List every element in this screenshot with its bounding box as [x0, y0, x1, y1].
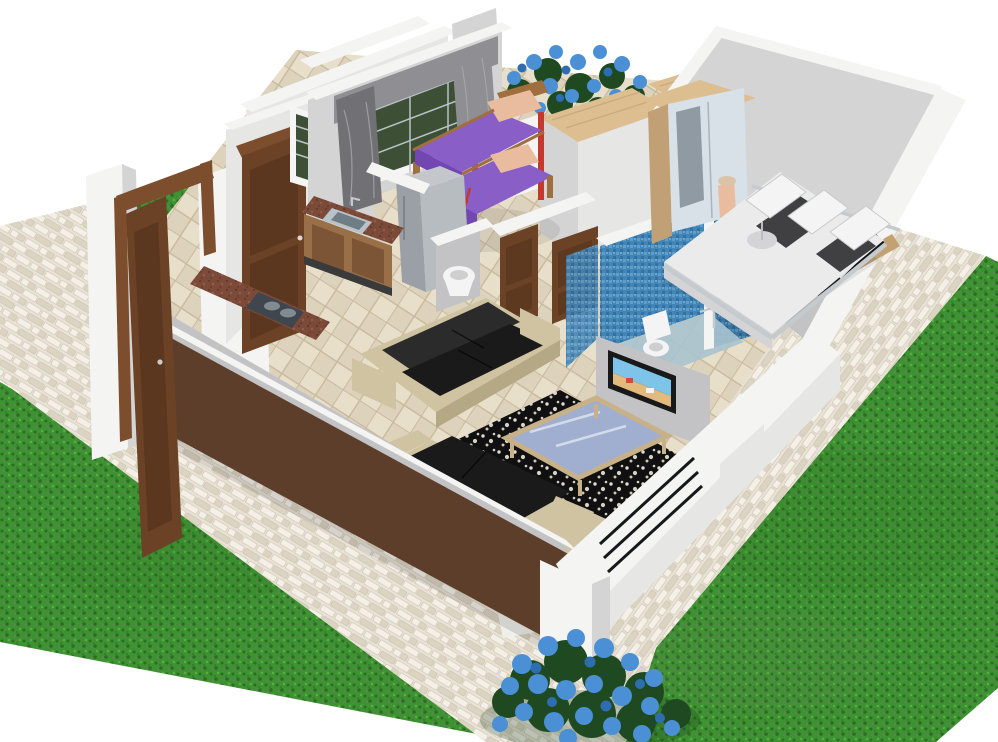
door-handle [157, 359, 162, 364]
blossom [556, 680, 576, 700]
blossom [570, 54, 586, 70]
blossom [585, 657, 596, 668]
blossom [507, 71, 521, 85]
blossom [528, 674, 548, 694]
floorplan-render [0, 0, 998, 742]
tv-boat [626, 378, 633, 383]
blossom [645, 669, 663, 687]
basin-bowl [450, 270, 468, 280]
blossom [633, 75, 647, 89]
tv-boat-white [646, 388, 654, 393]
blossom [538, 636, 558, 656]
door-handle [298, 236, 303, 241]
blossom [515, 703, 533, 721]
blossom [614, 56, 630, 72]
bunk-post-red [538, 112, 544, 200]
blossom [587, 79, 601, 93]
hob-burner [264, 302, 280, 311]
blossom [604, 68, 613, 77]
blossom [562, 66, 571, 75]
blossom [531, 663, 542, 674]
blossom [655, 713, 665, 723]
blossom [664, 720, 680, 736]
blossom [492, 716, 508, 732]
blossom [567, 629, 585, 647]
curtain-panel-left [336, 86, 382, 214]
blossom [594, 638, 614, 658]
blossom [526, 54, 542, 70]
toilet [642, 310, 671, 357]
blossom [544, 712, 564, 732]
blossom [612, 686, 632, 706]
hob-burner [280, 309, 296, 318]
blossom [621, 653, 639, 671]
blossom [575, 707, 593, 725]
mirror-reflection [676, 106, 704, 208]
blossom [549, 45, 563, 59]
blossom [565, 89, 579, 103]
blossom [635, 679, 645, 689]
blossom [556, 94, 564, 102]
blossom [512, 654, 532, 674]
blossom [593, 45, 607, 59]
blossom [518, 64, 527, 73]
blossom [601, 701, 612, 712]
floorplan-canvas [0, 0, 998, 742]
blossom [603, 717, 621, 735]
toilet-seat [649, 343, 663, 352]
bunk-leg [547, 176, 553, 198]
lawn-shading [640, 610, 880, 710]
blossom [547, 697, 557, 707]
blossom [501, 677, 519, 695]
wardrobe-side [648, 104, 672, 244]
lamp-shade [718, 176, 736, 186]
blossom [641, 697, 659, 715]
blossom [585, 675, 603, 693]
